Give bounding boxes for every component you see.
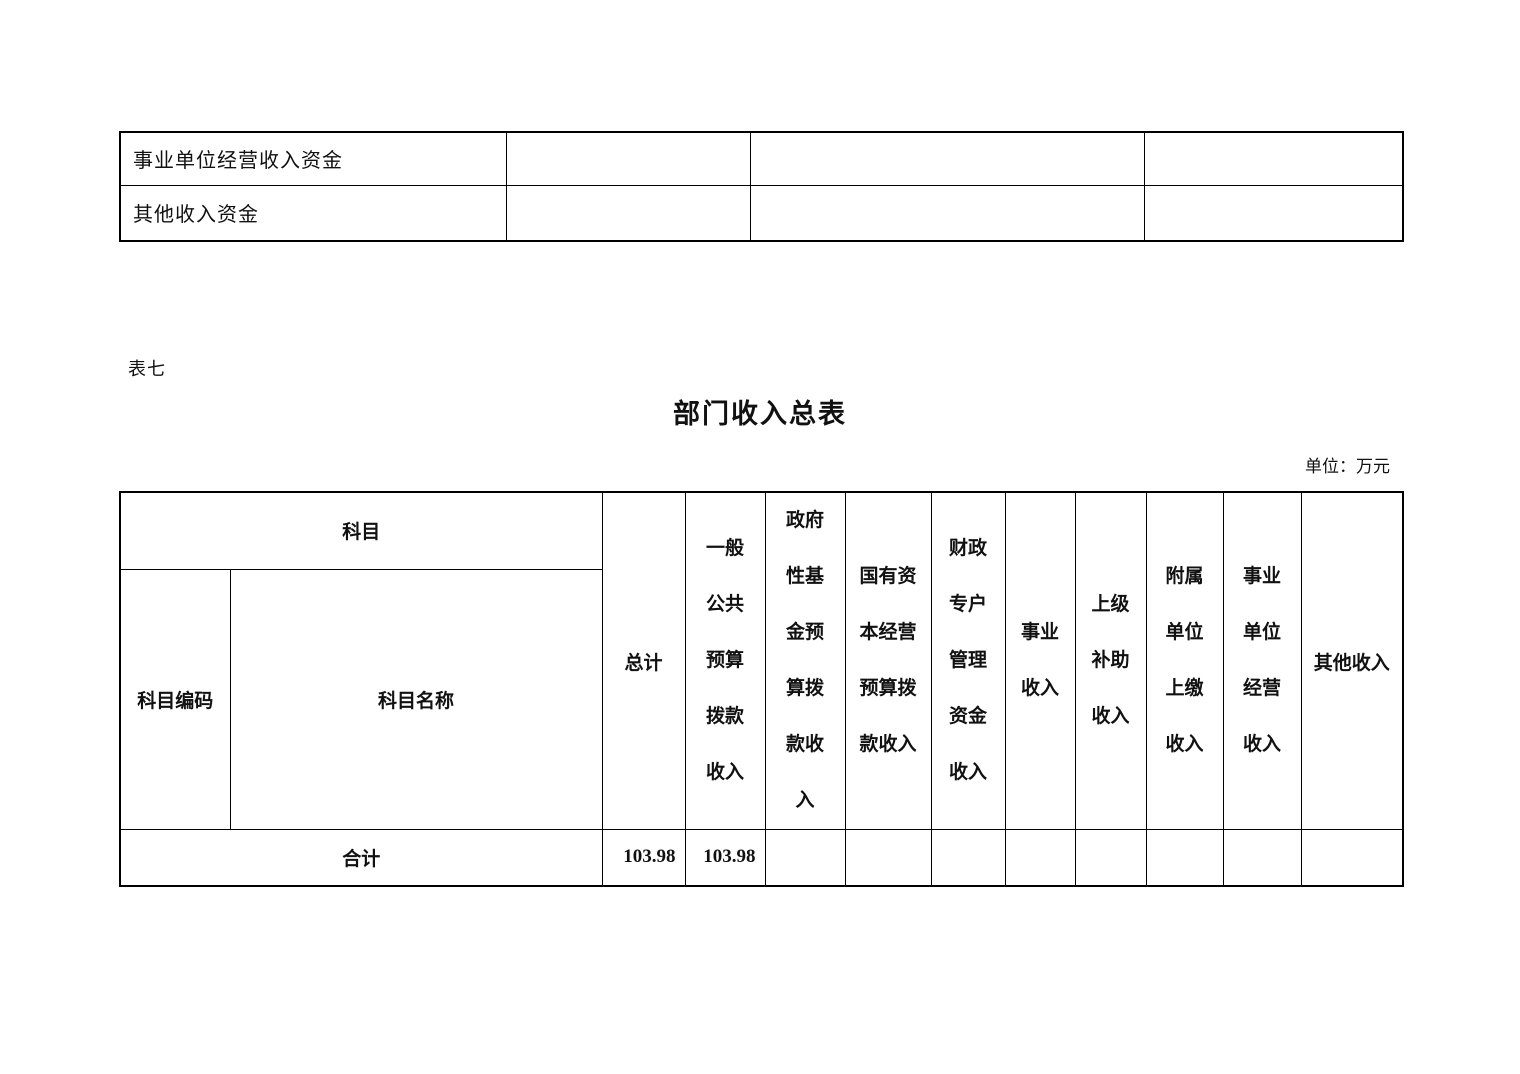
header-other-income: 其他收入 (1301, 492, 1403, 830)
table-row: 其他收入资金 (120, 185, 1403, 241)
table-number-label: 表七 (128, 355, 166, 381)
general-public-budget-value: 103.98 (685, 830, 765, 886)
institution-operating-value (1223, 830, 1301, 886)
row-label: 事业单位经营收入资金 (120, 132, 506, 185)
affiliated-unit-remittance-value (1146, 830, 1223, 886)
header-total: 总计 (602, 492, 685, 830)
header-institution-income: 事业 收入 (1005, 492, 1075, 830)
header-subject-name: 科目名称 (230, 569, 602, 829)
total-value: 103.98 (602, 830, 685, 886)
header-row-top: 科目 总计 一般 公共 预算 拨款 收入 政府 性基 金预 算拨 款收 入 国有… (120, 492, 1403, 569)
state-capital-budget-value (845, 830, 931, 886)
empty-cell (506, 132, 750, 185)
table-row: 事业单位经营收入资金 (120, 132, 1403, 185)
header-superior-subsidy-income: 上级 补助 收入 (1075, 492, 1146, 830)
unit-note: 单位：万元 (119, 452, 1390, 477)
institution-income-value (1005, 830, 1075, 886)
header-govt-fund-budget-income: 政府 性基 金预 算拨 款收 入 (765, 492, 845, 830)
income-summary-table: 科目 总计 一般 公共 预算 拨款 收入 政府 性基 金预 算拨 款收 入 国有… (119, 491, 1404, 887)
header-general-public-budget-income: 一般 公共 预算 拨款 收入 (685, 492, 765, 830)
header-state-capital-budget-income: 国有资 本经营 预算拨 款收入 (845, 492, 931, 830)
header-subject-code: 科目编码 (120, 569, 230, 829)
total-row-label: 合计 (120, 830, 602, 886)
empty-cell (750, 132, 1144, 185)
total-row: 合计 103.98 103.98 (120, 830, 1403, 886)
row-label: 其他收入资金 (120, 185, 506, 241)
header-fiscal-account-funds-income: 财政 专户 管理 资金 收入 (931, 492, 1005, 830)
page-title: 部门收入总表 (0, 392, 1520, 431)
fiscal-account-funds-value (931, 830, 1005, 886)
empty-cell (506, 185, 750, 241)
header-affiliated-unit-remittance-income: 附属 单位 上缴 收入 (1146, 492, 1223, 830)
top-table-fragment: 事业单位经营收入资金 其他收入资金 (119, 131, 1404, 242)
empty-cell (750, 185, 1144, 241)
document-page: 事业单位经营收入资金 其他收入资金 表七 部门收入总表 单位：万元 科目 (0, 0, 1520, 1074)
header-institution-operating-income: 事业 单位 经营 收入 (1223, 492, 1301, 830)
superior-subsidy-value (1075, 830, 1146, 886)
empty-cell (1144, 185, 1403, 241)
header-subject-group: 科目 (120, 492, 602, 569)
empty-cell (1144, 132, 1403, 185)
govt-fund-budget-value (765, 830, 845, 886)
other-income-value (1301, 830, 1403, 886)
